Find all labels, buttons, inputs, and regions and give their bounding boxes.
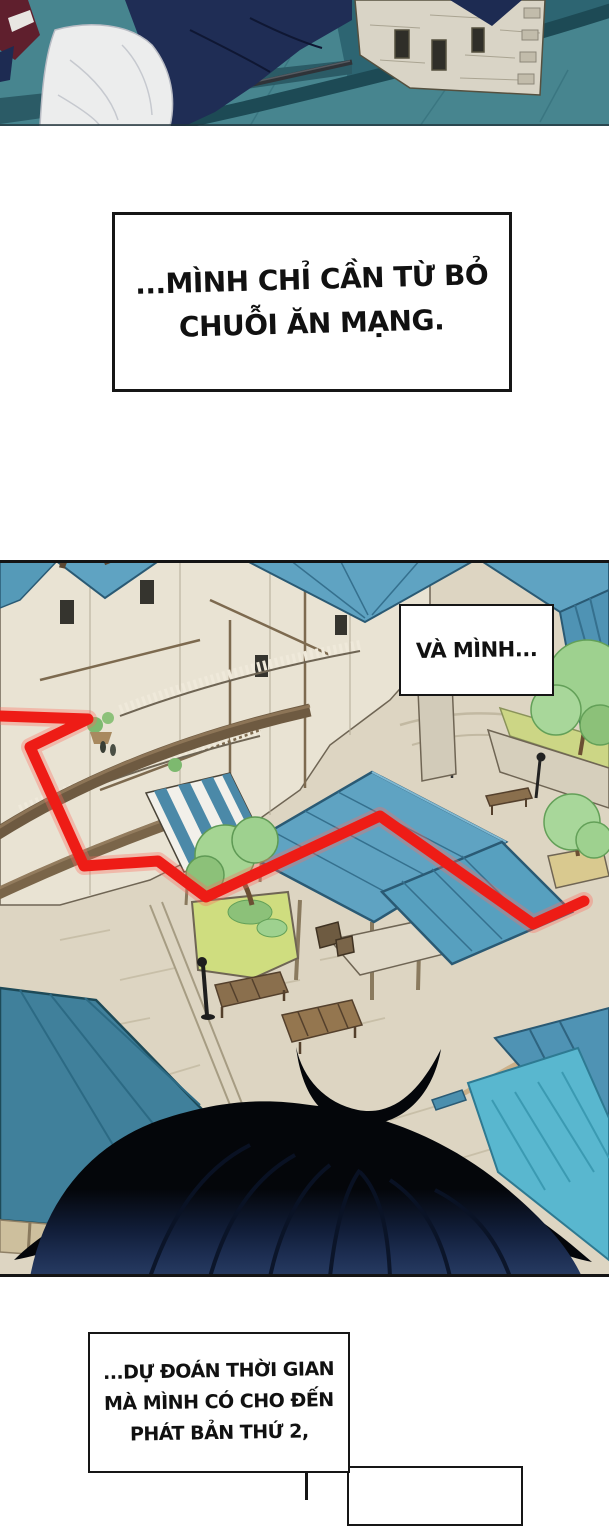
partial-box-edge: [305, 1473, 308, 1500]
caption-line: PHÁT BẢN THỨ 2,: [129, 1416, 308, 1450]
caption-line: CHUỖI ĂN MẠNG.: [179, 298, 445, 349]
chimney: [418, 682, 456, 781]
caption-line: VÀ MÌNH...: [416, 637, 538, 663]
caption-box-resolve: ...MÌNH CHỈ CẦN TỪ BỎ CHUỖI ĂN MẠNG.: [112, 212, 512, 392]
caption-box-va-minh: VÀ MÌNH...: [399, 604, 554, 696]
caption-box-estimate: ...DỰ ĐOÁN THỜI GIAN MÀ MÌNH CÓ CHO ĐẾN …: [88, 1332, 350, 1473]
pedestrian: [100, 741, 106, 753]
caption-line: MÀ MÌNH CÓ CHO ĐẾN: [104, 1385, 334, 1420]
rooftop-art: [0, 0, 609, 126]
caption-line: ...DỰ ĐOÁN THỜI GIAN: [103, 1354, 335, 1389]
panel-rooftop: [0, 0, 609, 126]
comic-page: { "comic": { "title": "manhwa-page", "ca…: [0, 0, 609, 1500]
partial-caption-box: [347, 1466, 523, 1526]
pedestrian: [110, 744, 116, 756]
